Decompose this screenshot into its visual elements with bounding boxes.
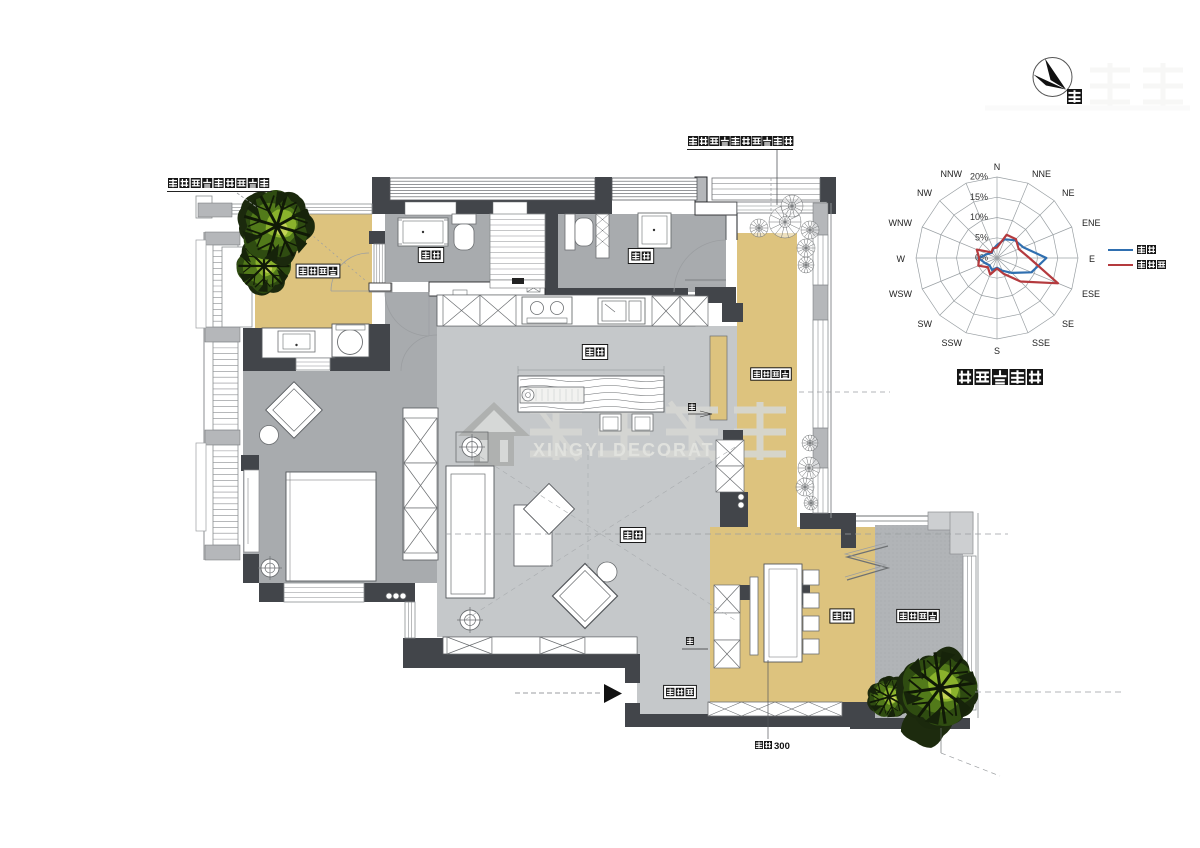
svg-text:W: W: [897, 254, 906, 264]
svg-text:NE: NE: [1062, 188, 1075, 198]
svg-text:300: 300: [774, 741, 790, 752]
svg-text:SSE: SSE: [1032, 338, 1050, 348]
svg-text:WSW: WSW: [889, 289, 912, 299]
svg-text:SSW: SSW: [941, 338, 962, 348]
svg-text:WNW: WNW: [889, 218, 913, 228]
svg-text:E: E: [1089, 254, 1095, 264]
svg-text:NNW: NNW: [941, 169, 963, 179]
svg-text:S: S: [994, 346, 1000, 356]
svg-text:NW: NW: [917, 188, 932, 198]
svg-text:NNE: NNE: [1032, 169, 1051, 179]
svg-text:10%: 10%: [970, 212, 988, 222]
svg-text:5%: 5%: [975, 232, 988, 242]
svg-text:XINGYI DECORATI: XINGYI DECORATI: [533, 440, 722, 460]
svg-text:ENE: ENE: [1082, 218, 1101, 228]
svg-text:20%: 20%: [970, 172, 988, 182]
svg-text:ESE: ESE: [1082, 289, 1100, 299]
svg-text:SW: SW: [918, 319, 933, 329]
svg-text:15%: 15%: [970, 192, 988, 202]
svg-text:N: N: [994, 162, 1001, 172]
svg-text:SE: SE: [1062, 319, 1074, 329]
